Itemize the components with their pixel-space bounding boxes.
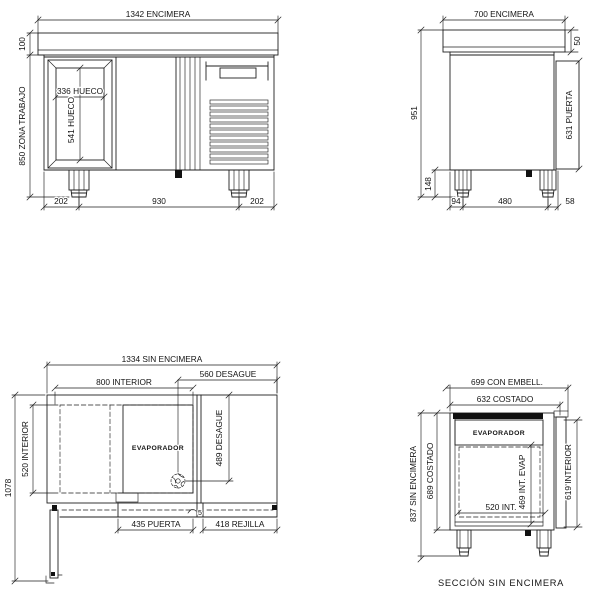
plan-evaporator-label: EVAPORADOR xyxy=(132,445,184,452)
plan-dim-total-depth: 1078 xyxy=(3,478,13,497)
section-dim-interior-width: 520 INT. xyxy=(486,502,517,512)
side-drain-plug xyxy=(526,170,532,177)
front-dim-bottom-right: 202 xyxy=(250,196,264,206)
side-dim-top-thickness: 50 xyxy=(572,36,582,46)
side-dim-door: 631 PUERTA xyxy=(564,90,574,140)
plan-dim-interior-width: 800 INTERIOR xyxy=(96,377,152,387)
front-dim-backsplash: 100 xyxy=(17,37,27,51)
side-dim-leg-height: 148 xyxy=(423,177,433,191)
section-caption: SECCIÓN SIN ENCIMERA xyxy=(438,578,564,588)
front-dim-hueco-height: 541 HUECO xyxy=(66,96,76,143)
section-dim-costado-height: 689 COSTADO xyxy=(425,442,435,499)
plan-dim-drain-x: 560 DESAGUE xyxy=(200,369,257,379)
section-drain-plug xyxy=(525,530,531,536)
side-view: 700 ENCIMERA 50 951 631 PUERTA 148 94 48… xyxy=(409,9,582,210)
front-dim-encimera: 1342 ENCIMERA xyxy=(126,9,191,19)
plan-front-corner-plug xyxy=(272,505,277,510)
front-view-louver-grille xyxy=(210,100,268,164)
section-dim-costado-width: 632 COSTADO xyxy=(477,394,534,404)
technical-drawing-canvas: 1342 ENCIMERA 100 850 ZONA TRABAJO 336 H… xyxy=(0,0,600,600)
plan-view-dimensions: 1334 SIN ENCIMERA 560 DESAGUE 800 INTERI… xyxy=(3,354,280,584)
section-view-legs xyxy=(457,530,551,556)
plan-dim-grille: 418 REJILLA xyxy=(216,519,265,529)
technical-drawing-sheet: 1342 ENCIMERA 100 850 ZONA TRABAJO 336 H… xyxy=(0,0,600,600)
section-dim-interior-height: 619 INTERIOR xyxy=(563,444,573,500)
plan-view: 1334 SIN ENCIMERA 560 DESAGUE 800 INTERI… xyxy=(3,354,280,584)
front-view-dimensions: 1342 ENCIMERA 100 850 ZONA TRABAJO 336 H… xyxy=(17,9,281,210)
plan-dim-drain-y: 489 DESAGUE xyxy=(214,409,224,466)
section-dim-embell: 699 CON EMBELL. xyxy=(471,377,543,387)
plan-dim-interior-depth: 520 INTERIOR xyxy=(20,421,30,477)
drain-fan-icon xyxy=(171,474,185,489)
side-dim-bottom-right: 58 xyxy=(565,196,575,206)
plan-dim-door: 435 PUERTA xyxy=(131,519,181,529)
section-dim-int-evap: 469 INT. EVAP xyxy=(517,454,527,509)
section-evaporator-label: EVAPORADOR xyxy=(473,430,525,437)
side-dim-bottom-left: 94 xyxy=(451,196,461,206)
side-dim-total-height: 951 xyxy=(409,106,419,120)
front-dim-bottom-left: 202 xyxy=(54,196,68,206)
section-view: 699 CON EMBELL. 632 COSTADO EVAPORADOR 8… xyxy=(408,377,582,588)
plan-dim-total-width: 1334 SIN ENCIMERA xyxy=(122,354,203,364)
section-top-insulation xyxy=(453,413,543,419)
plan-open-door xyxy=(46,510,62,583)
front-dim-hueco-width: 336 HUECO xyxy=(57,86,104,96)
plan-door-note: 5 xyxy=(198,510,202,517)
front-view: 1342 ENCIMERA 100 850 ZONA TRABAJO 336 H… xyxy=(17,9,281,210)
side-view-outline xyxy=(443,30,579,177)
side-dim-encimera: 700 ENCIMERA xyxy=(474,9,534,19)
plan-view-outline xyxy=(46,395,277,583)
front-view-handle xyxy=(206,62,268,80)
front-drain-plug xyxy=(175,170,182,178)
front-dim-work-zone: 850 ZONA TRABAJO xyxy=(17,86,27,166)
side-dim-bottom-center: 480 xyxy=(498,196,512,206)
front-dim-bottom-center: 930 xyxy=(152,196,166,206)
section-dim-sin-encimera: 837 SIN ENCIMERA xyxy=(408,445,418,522)
